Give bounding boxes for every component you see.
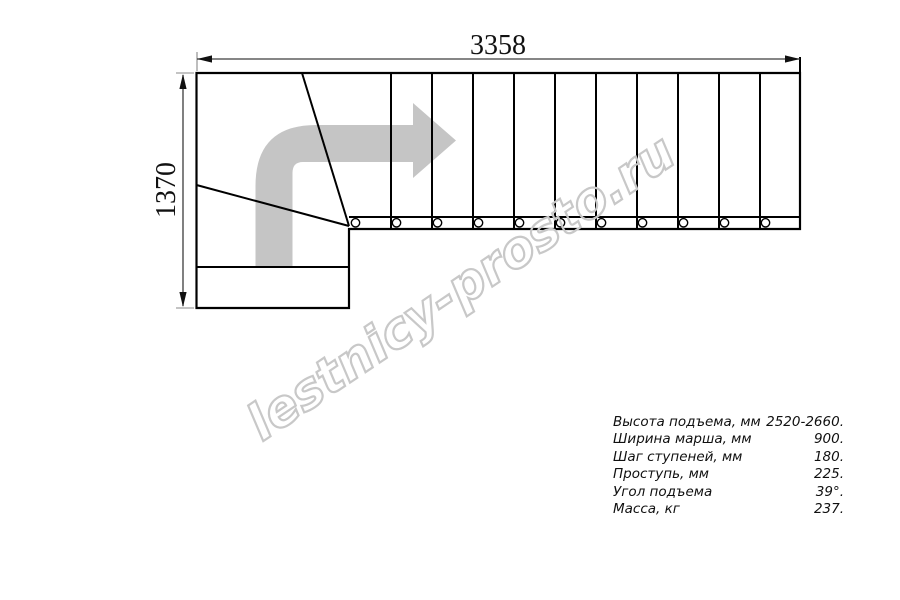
spec-row: Угол подъема 39°.: [613, 484, 844, 501]
spec-label: Угол подъема: [613, 484, 712, 501]
spec-row: Шаг ступеней, мм 180.: [613, 449, 844, 466]
baluster-circle: [720, 219, 728, 227]
spec-value: 2520-2660.: [766, 414, 844, 431]
dimension-arrowhead-down: [179, 292, 186, 307]
watermark-text: lestnicy-prosto.ru: [236, 123, 685, 452]
height-dimension-label: 1370: [151, 162, 182, 218]
dimension-arrowhead-left: [197, 55, 212, 62]
spec-value: 39°.: [816, 484, 844, 501]
dimension-arrowhead-up: [179, 74, 186, 89]
spec-value: 180.: [814, 449, 844, 466]
spec-value: 237.: [814, 501, 844, 518]
spec-row: Ширина марша, мм 900.: [613, 431, 844, 448]
spec-row: Масса, кг 237.: [613, 501, 844, 518]
spec-label: Проступь, мм: [613, 466, 709, 483]
spec-value: 225.: [814, 466, 844, 483]
width-dimension-label: 3358: [470, 30, 526, 61]
direction-arrow: [256, 103, 457, 267]
stair-drawing-page: 3358 1370 lestnicy-prosto.ru Высота подъ…: [0, 0, 900, 600]
baluster-circle: [351, 219, 359, 227]
baluster-circle: [638, 219, 646, 227]
dimension-arrowhead-right: [785, 55, 800, 62]
spec-label: Шаг ступеней, мм: [613, 449, 742, 466]
baluster-circle: [679, 219, 687, 227]
baluster-circle: [392, 219, 400, 227]
spec-row: Проступь, мм 225.: [613, 466, 844, 483]
spec-value: 900.: [814, 431, 844, 448]
baluster-circle: [761, 219, 769, 227]
spec-label: Масса, кг: [613, 501, 680, 518]
baluster-circle: [474, 219, 482, 227]
baluster-circle: [433, 219, 441, 227]
spec-table: Высота подъема, мм 2520-2660. Ширина мар…: [613, 414, 844, 518]
spec-label: Высота подъема, мм: [613, 414, 761, 431]
spec-label: Ширина марша, мм: [613, 431, 752, 448]
spec-row: Высота подъема, мм 2520-2660.: [613, 414, 844, 431]
